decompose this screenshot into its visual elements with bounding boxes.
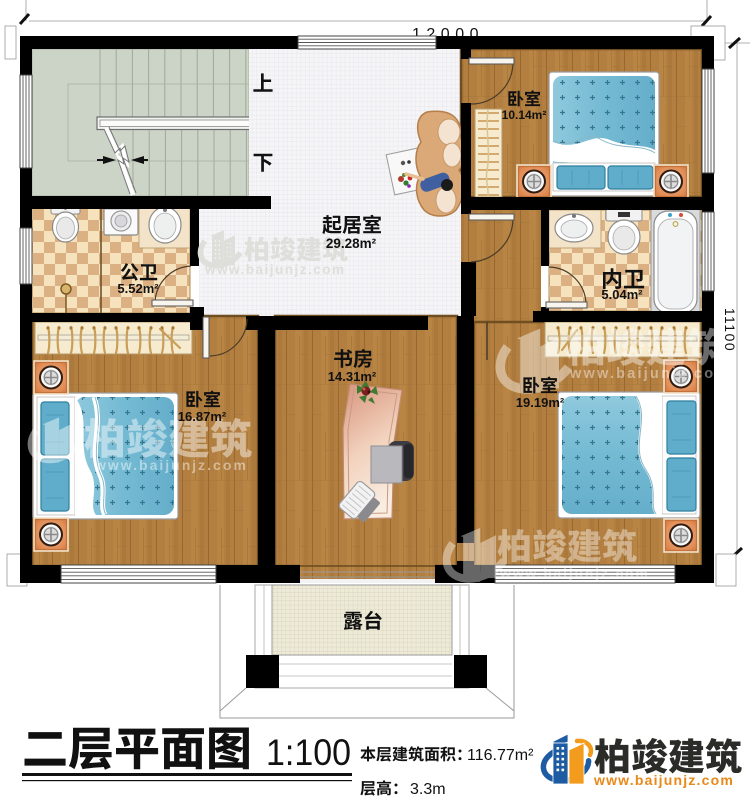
svg-text:10.14m²: 10.14m² bbox=[502, 108, 547, 122]
svg-text:1:100: 1:100 bbox=[266, 732, 351, 773]
svg-text:3.3m: 3.3m bbox=[410, 781, 446, 798]
svg-text:116.77m²: 116.77m² bbox=[467, 747, 534, 764]
svg-text:www.baijunjz.com: www.baijunjz.com bbox=[593, 772, 734, 788]
svg-text:www.baijunjz.com: www.baijunjz.com bbox=[499, 565, 650, 581]
svg-text:5.52m²: 5.52m² bbox=[117, 281, 159, 296]
svg-text:www.baijunjz.com: www.baijunjz.com bbox=[204, 262, 346, 277]
svg-text:16.87m²: 16.87m² bbox=[178, 409, 227, 424]
svg-text:5.04m²: 5.04m² bbox=[601, 287, 643, 302]
svg-text:19.19m²: 19.19m² bbox=[516, 395, 565, 410]
svg-text:29.28m²: 29.28m² bbox=[326, 236, 377, 251]
svg-text:14.31m²: 14.31m² bbox=[328, 369, 377, 384]
svg-text:www.baijunjz.com: www.baijunjz.com bbox=[569, 366, 730, 382]
svg-text:www.baijunjz.com: www.baijunjz.com bbox=[94, 457, 248, 473]
svg-text:11100: 11100 bbox=[722, 308, 738, 352]
